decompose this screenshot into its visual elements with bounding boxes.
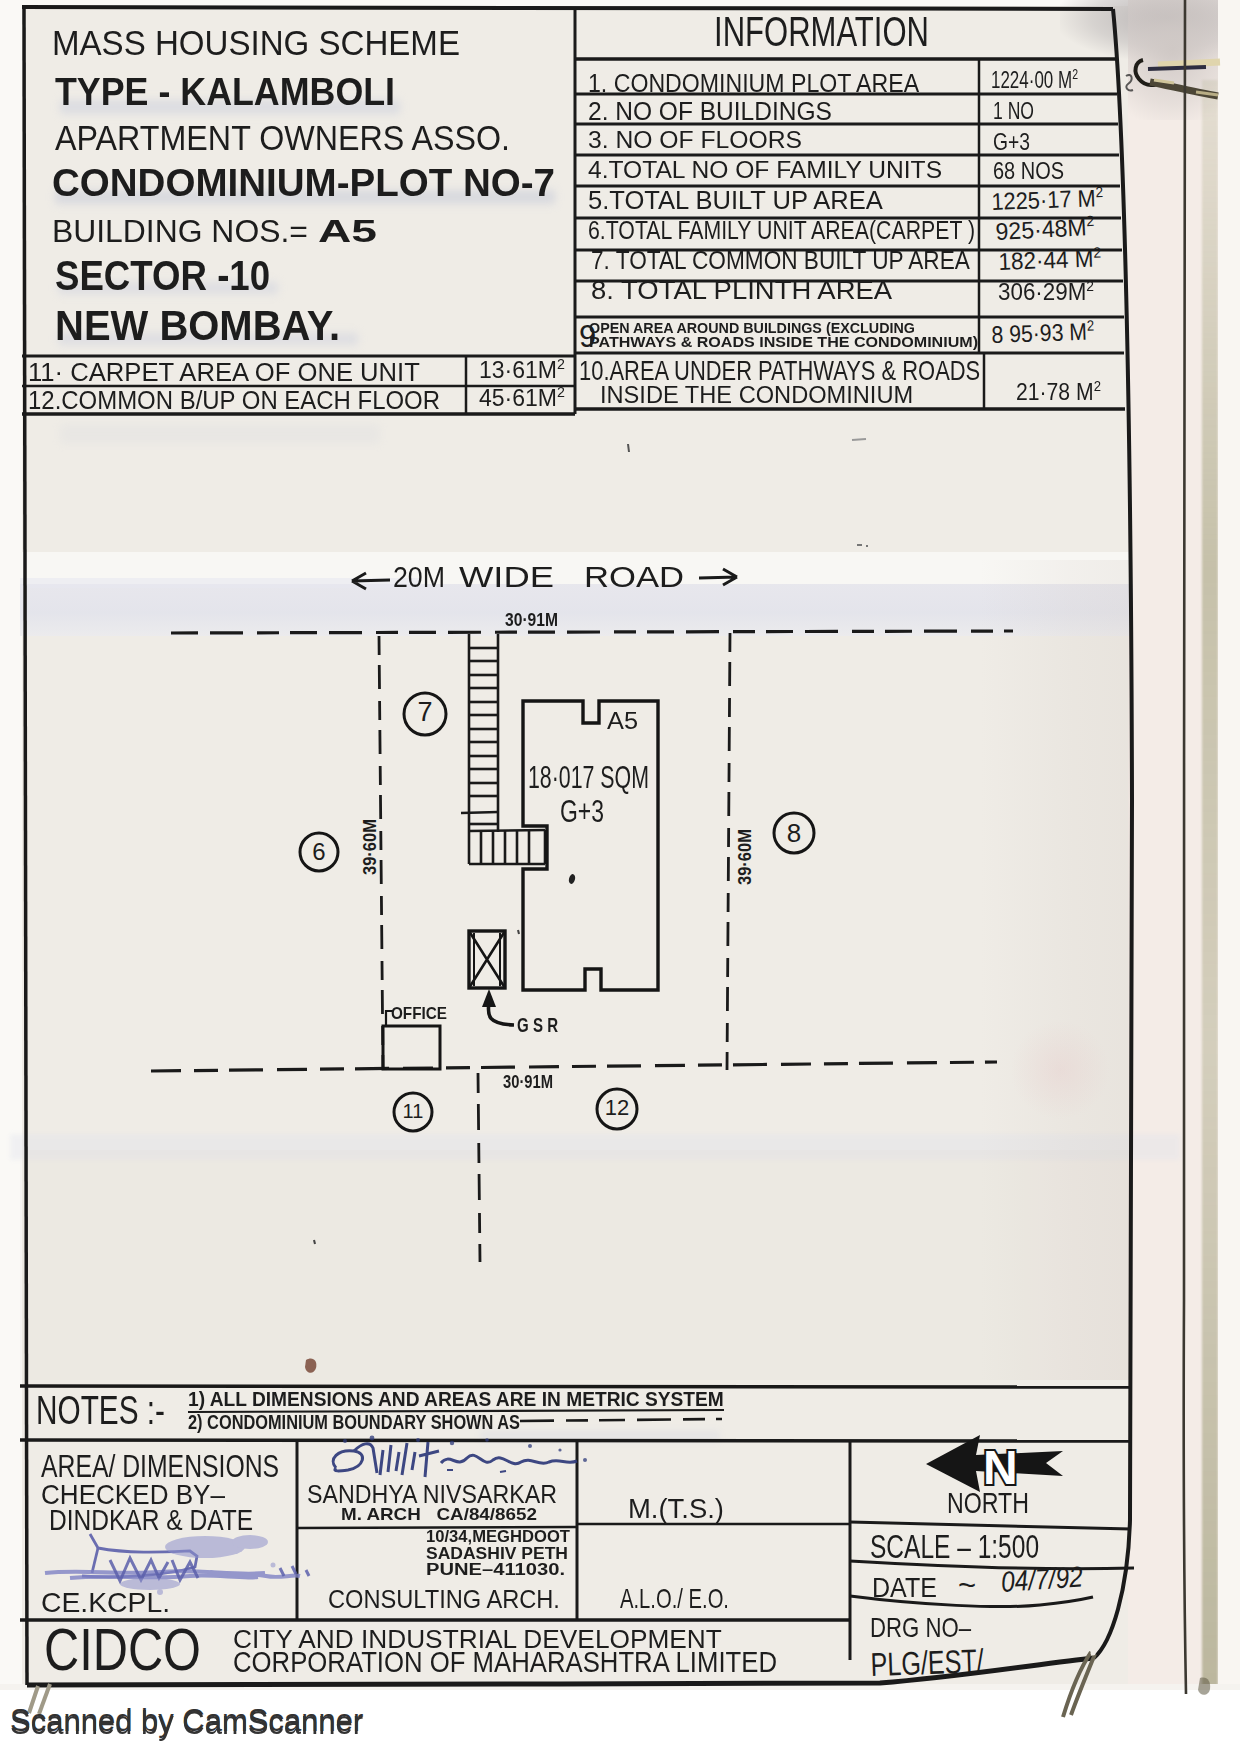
svg-text:N: N bbox=[983, 1441, 1018, 1494]
